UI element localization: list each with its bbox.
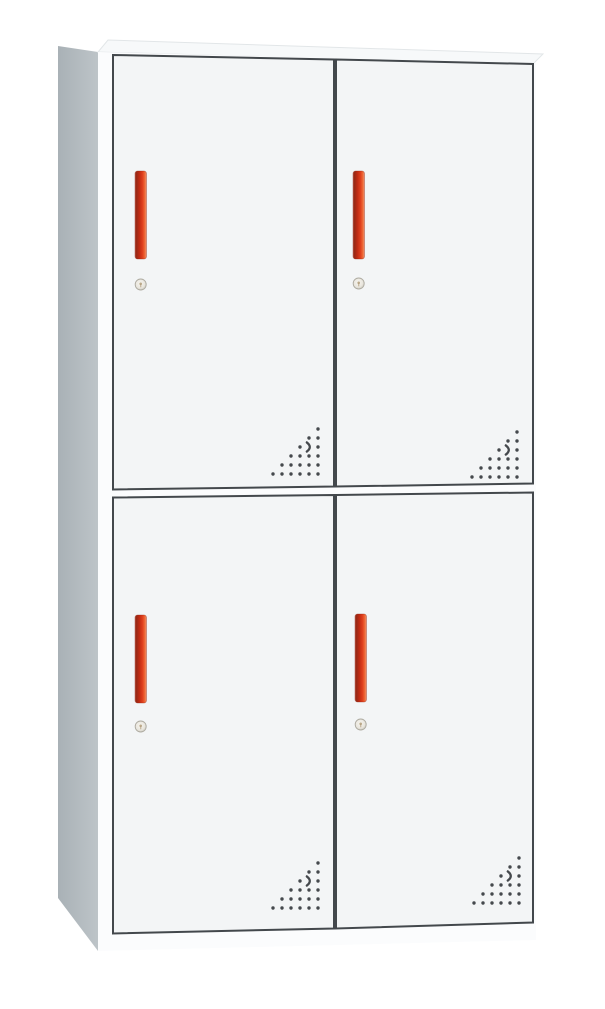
door-bottom-left: [113, 495, 334, 934]
lock-top-right: [353, 278, 364, 289]
handle-top-right: [353, 171, 365, 259]
locker-cabinet-illustration: [0, 0, 605, 1009]
side-panel-left: [58, 46, 98, 951]
door-top-right: [336, 60, 533, 487]
product-photo: [0, 0, 605, 1009]
lock-top-left: [135, 279, 146, 290]
handle-bottom-right: [355, 614, 367, 702]
handle-top-left: [135, 171, 147, 259]
door-bottom-right: [336, 493, 533, 929]
lock-bottom-left: [135, 721, 146, 732]
lock-bottom-right: [355, 719, 366, 730]
handle-bottom-left: [135, 615, 147, 703]
door-top-left: [113, 55, 334, 490]
